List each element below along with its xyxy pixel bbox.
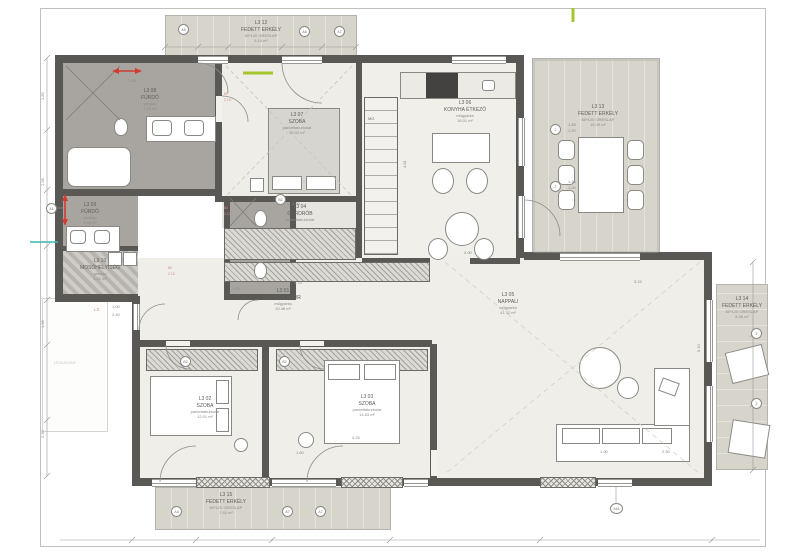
axis-marker-a4: A4 — [171, 506, 182, 517]
dim-180: 1.80 — [40, 92, 45, 100]
dim-390: 3.90 — [464, 250, 472, 255]
kitchen-mg-label: MG — [368, 116, 374, 121]
axis-marker-a7b: A7 — [282, 506, 293, 517]
dim-475: 4.75 — [294, 280, 302, 285]
pink-l3-tag: L3 — [94, 307, 99, 312]
room-label-l3-08: L3 08FÜRDŐ greslap7.19 m² — [110, 88, 190, 111]
dim-120a: 1.20 — [232, 286, 240, 291]
room-label-l3-02: L3 02SZOBA parkettaburkolat12.01 m² — [165, 396, 245, 419]
room-label-l3-06: L3 06KONYHA ÉTKEZŐ műgyanta18.01 m² — [425, 100, 505, 123]
dim-258: 2.58 — [40, 178, 45, 186]
door-size-1-h: 2.10 — [224, 98, 231, 102]
axis-marker-a7c: A7 — [315, 506, 326, 517]
axis-marker-a14: A14 — [610, 503, 623, 514]
dim-510: 5.10 — [696, 344, 701, 352]
room-label-l3-03: L3 03SZOBA parkettaburkolat14.83 m² — [327, 394, 407, 417]
door-size-1-w: 80 — [224, 92, 228, 96]
dim-100: 1.00 — [112, 304, 120, 309]
dim-190b: 1.90 — [600, 449, 608, 454]
room-label-l3-09: L3 09FÜRDŐ greslap5.98 m² — [60, 202, 120, 225]
axis-marker-a6: A6 — [299, 26, 310, 37]
room-label-l3-04: L3 04GARDRÓB parkettaburkolat — [260, 204, 340, 222]
dim-145b: 1.45 — [568, 179, 576, 184]
door-size-2-w: 80 — [224, 206, 228, 210]
room-label-l3-05: L3 05NAPPALI műgyanta41.32 m² — [468, 292, 548, 315]
door-size-2-h: 2.10 — [224, 212, 231, 216]
dim-230a: 2.30 — [40, 430, 45, 438]
dim-145a: 1.45 — [568, 122, 576, 127]
dim-150: 1.50 — [128, 78, 136, 83]
dim-315: 3.15 — [634, 279, 642, 284]
dim-230b: 2.30 — [662, 449, 670, 454]
door-marker-b2a: B2 — [180, 356, 191, 367]
dim-481: 4.81 — [402, 160, 407, 168]
door-size-3-w: 80 — [168, 266, 172, 270]
ref-marker-2d: 2 — [751, 398, 762, 409]
dim-120c: 1.20 — [568, 185, 576, 190]
floor-plan-canvas: L3 08FÜRDŐ greslap7.19 m² L3 07SZOBA par… — [0, 0, 800, 557]
door-size-3-h: 2.10 — [168, 272, 175, 276]
balcony13-railing — [534, 60, 658, 252]
balcony-label-l3-12: L3 12FEDETT ERKÉLY 60*120 GRESLAP5.10 m² — [221, 20, 301, 43]
dimension-chains — [44, 44, 760, 543]
axis-marker-a1: A1 — [46, 203, 57, 214]
balcony-label-l3-14: L3 14FEDETT ERKÉLY 60*120 GRESLAP8.36 m² — [712, 296, 772, 319]
room-label-l3-10: L3 10MOSÓHELYISÉG greslap1.21 m² — [60, 258, 140, 281]
axis-marker-a5: A5 — [178, 24, 189, 35]
room-label-l3-07: L3 07SZOBA parkettaburkolat19.02 m² — [257, 112, 337, 135]
ref-marker-2a: 2 — [550, 124, 561, 135]
door-marker-b2c: B2 — [275, 194, 286, 205]
ref-marker-2b: 2 — [550, 181, 561, 192]
door-marker-b2b: B2 — [279, 356, 290, 367]
room-label-l3-01: L3 01ELŐSZ/GARDR műgyanta10.48 m² — [243, 288, 323, 311]
axis-marker-a7: A7 — [334, 26, 345, 37]
dim-120b: 1.20 — [568, 128, 576, 133]
dim-190a: 1.90 — [292, 201, 300, 206]
light-well-label: LÉGUDVAR — [54, 360, 76, 365]
ref-marker-2c: 2 — [751, 328, 762, 339]
dim-168: 1.68 — [40, 320, 45, 328]
dim-240: 2.40 — [112, 312, 120, 317]
dim-160: 1.60 — [296, 450, 304, 455]
dim-425: 4.25 — [352, 435, 360, 440]
balcony-label-l3-15: L3 15FEDETT ERKÉLY 60*120 GRESLAP7.40 m² — [186, 492, 266, 515]
